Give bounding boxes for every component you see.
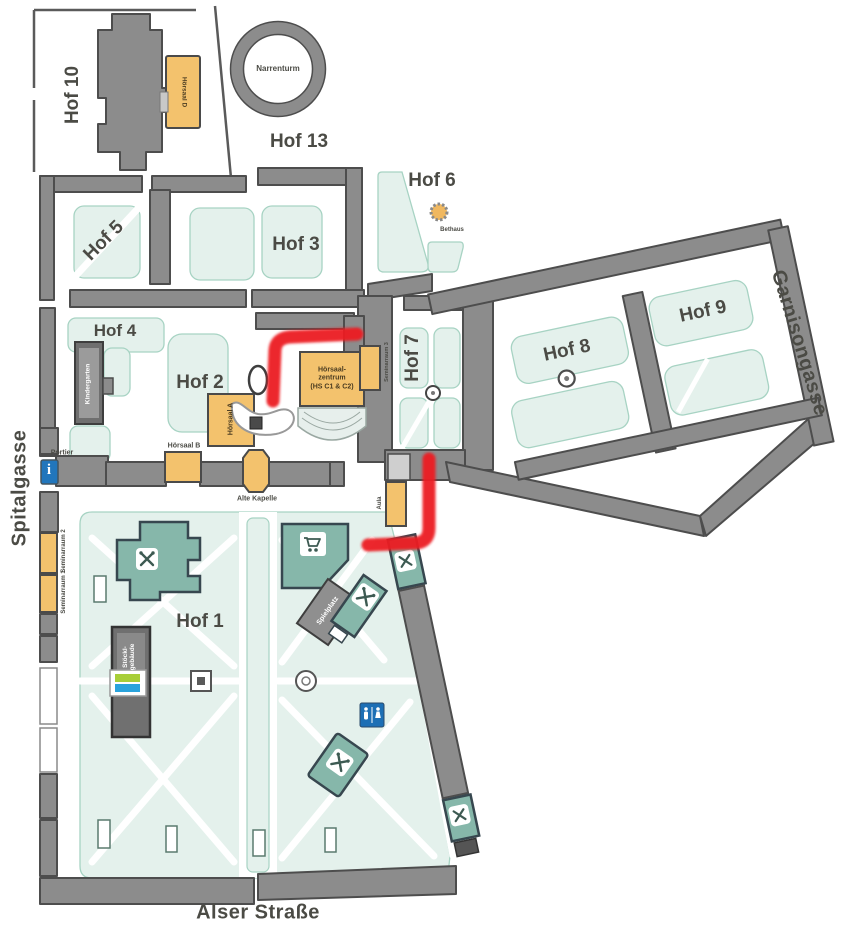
label-hoersaal-d: Hörsaal D bbox=[180, 77, 187, 107]
campus-map: Spitalgasse Alser Straße Garnisongasse H… bbox=[0, 0, 847, 928]
label-hof4: Hof 4 bbox=[94, 322, 137, 340]
label-stoecklgebaeude: Stöckl- gebäude bbox=[123, 644, 137, 671]
label-hof13: Hof 13 bbox=[270, 132, 328, 152]
label-hoersaal-a: Hörsaal A bbox=[227, 403, 234, 435]
restaurant-icon bbox=[394, 549, 418, 573]
oval-monument bbox=[249, 366, 267, 394]
hoersaal-b-building bbox=[165, 452, 201, 482]
seminarraum1-building bbox=[40, 575, 57, 612]
hof3-lawn-west bbox=[190, 208, 254, 280]
label-kindergarten: Kindergarten bbox=[86, 364, 93, 404]
square-fountain bbox=[191, 671, 211, 691]
central-median-lawn bbox=[247, 518, 269, 872]
label-portier: Portier bbox=[51, 449, 74, 456]
hof8-lawn-south bbox=[509, 379, 630, 450]
label-hof2: Hof 2 bbox=[176, 373, 224, 393]
hof10-building bbox=[98, 14, 170, 170]
circle-fountain bbox=[296, 671, 316, 691]
label-seminarraum3: Seminarraum 3 bbox=[385, 342, 391, 382]
seminarraum2-building bbox=[40, 533, 57, 573]
label-bethaus: Bethaus bbox=[440, 227, 464, 233]
hof7-lawn-ne bbox=[434, 328, 460, 388]
alte-kapelle-building bbox=[243, 450, 269, 492]
street-label-alser-strasse: Alser Straße bbox=[196, 903, 320, 924]
seminarraum3-building bbox=[360, 346, 380, 390]
left-arcade bbox=[40, 668, 57, 772]
label-hoersaal-b: Hörsaal B bbox=[168, 442, 201, 449]
cart-icon bbox=[300, 532, 326, 556]
hof7-lawn-se bbox=[434, 398, 460, 448]
auditorium-fan bbox=[298, 408, 366, 440]
hoersaal-d-connector bbox=[160, 92, 168, 112]
hof7-fountain bbox=[426, 386, 440, 400]
aula-building bbox=[386, 482, 406, 526]
label-hsz-line1: Hörsaal- bbox=[310, 366, 353, 374]
recycling-icon bbox=[110, 670, 146, 696]
label-hsz-line2: zentrum bbox=[310, 375, 353, 383]
label-hof6: Hof 6 bbox=[408, 171, 456, 191]
label-alte-kapelle: Alte Kapelle bbox=[237, 495, 277, 502]
label-aula: Aula bbox=[377, 496, 383, 509]
label-stoeckl-line2: gebäude bbox=[130, 644, 137, 671]
hof6-lawn-small bbox=[428, 242, 463, 272]
passage-area bbox=[388, 454, 410, 480]
label-hof3: Hof 3 bbox=[272, 235, 320, 255]
info-icon-glyph: i bbox=[47, 463, 51, 479]
restaurant-icon bbox=[448, 803, 472, 827]
label-hof10: Hof 10 bbox=[63, 66, 83, 124]
restaurant-icon bbox=[136, 548, 158, 570]
label-hsz-line3: (HS C1 & C2) bbox=[310, 383, 353, 391]
label-hof1: Hof 1 bbox=[176, 612, 224, 632]
pond-platform bbox=[250, 417, 262, 429]
street-label-spitalgasse: Spitalgasse bbox=[10, 430, 31, 547]
label-narrenturm: Narrenturm bbox=[256, 65, 300, 73]
bethaus-building bbox=[431, 204, 447, 220]
label-seminarraum1: Seminarraum 1 bbox=[61, 570, 67, 613]
label-hoersaalzentrum: Hörsaal- zentrum (HS C1 & C2) bbox=[310, 366, 353, 391]
wc-icon bbox=[360, 703, 384, 727]
label-hof7: Hof 7 bbox=[403, 334, 423, 382]
label-seminarraum2: Seminarraum 2 bbox=[61, 529, 67, 572]
map-canvas bbox=[0, 0, 847, 928]
